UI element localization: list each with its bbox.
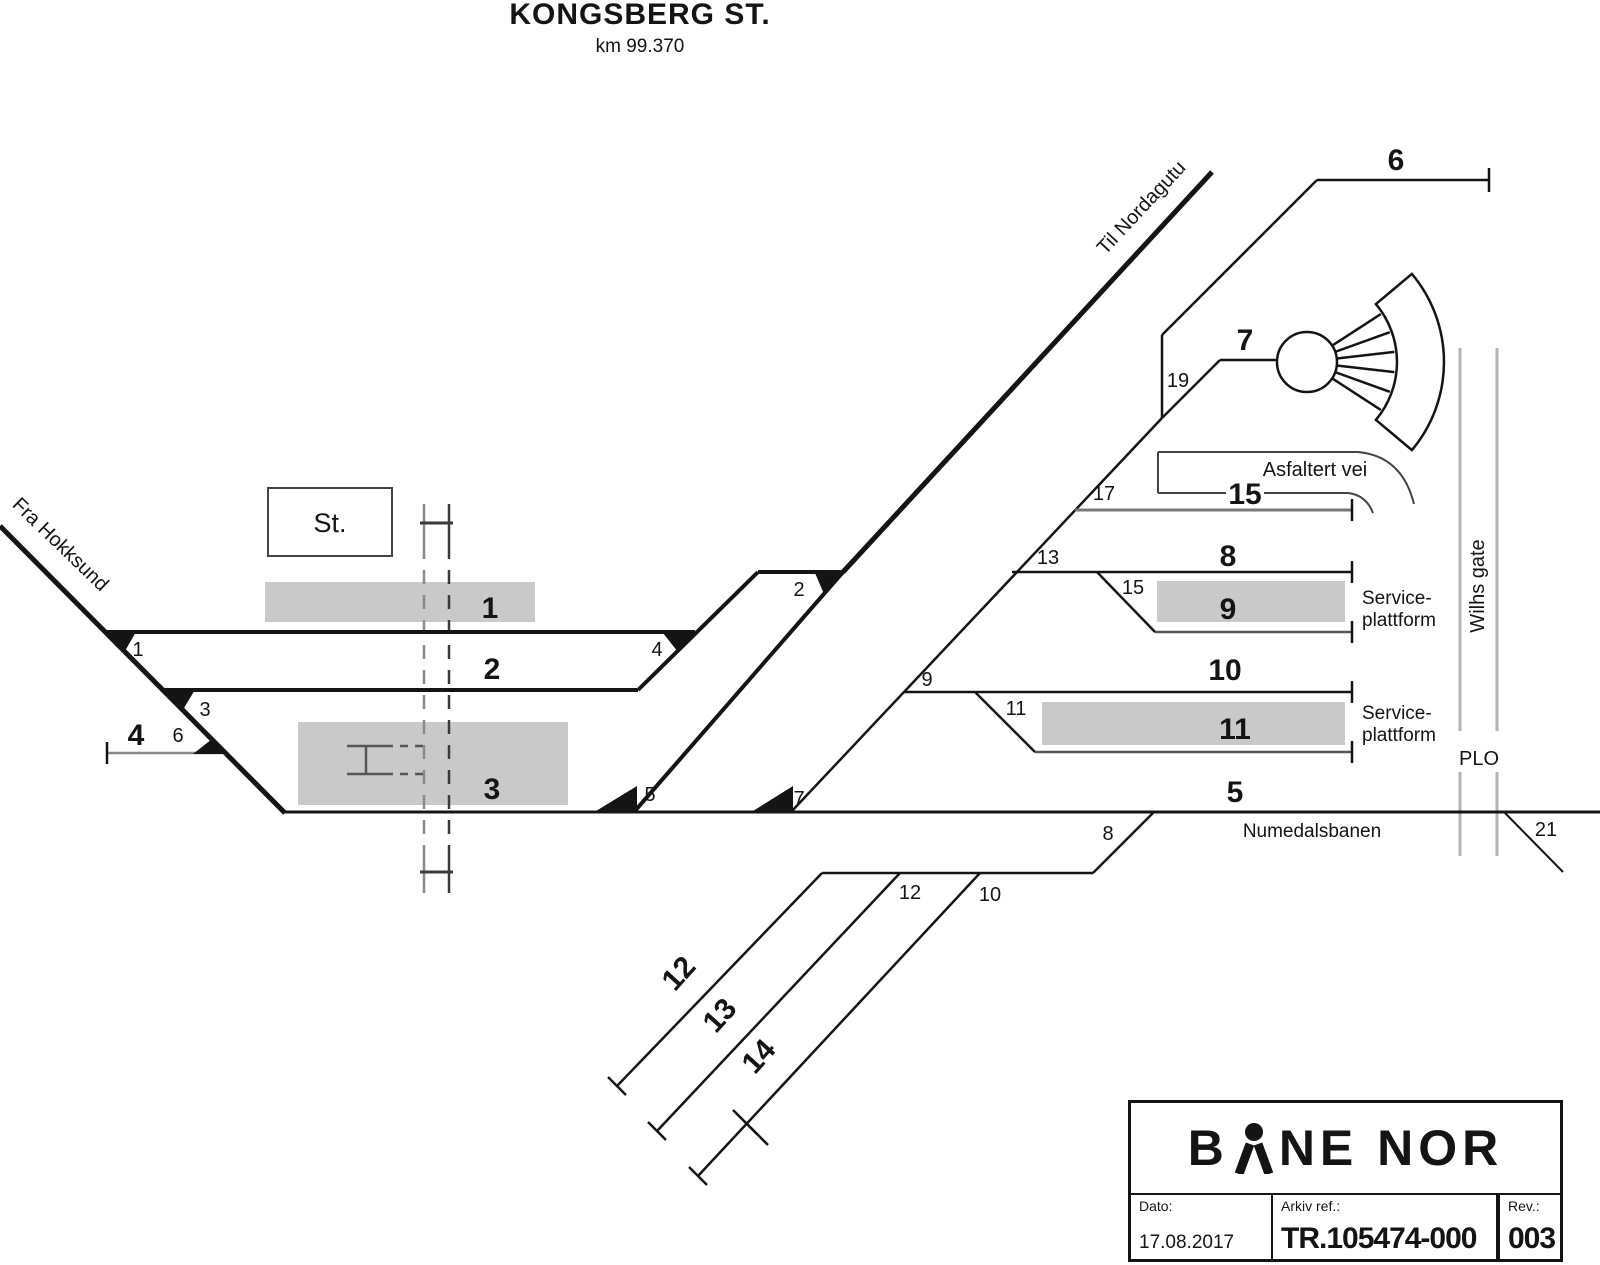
service-platform-label-1a: Service- xyxy=(1362,588,1432,609)
switch-label-5: 5 xyxy=(644,784,655,806)
titleblock: B NE NOR Dato: 17.08.2017 Arkiv ref.: TR… xyxy=(1128,1100,1563,1262)
switch-label-4: 4 xyxy=(651,639,662,661)
track-label-3: 3 xyxy=(484,773,501,806)
wedge-switch-4 xyxy=(663,633,697,652)
switch-label-12: 12 xyxy=(899,882,921,904)
switch-label-11: 11 xyxy=(1006,698,1027,720)
service-platform-11 xyxy=(1042,702,1345,745)
service-platform-label-2b: plattform xyxy=(1362,725,1436,746)
brand-letters-ne-nor: NE NOR xyxy=(1279,1123,1503,1173)
endpoint-from-label: Fra Hokksund xyxy=(8,494,113,596)
track-end-ticks xyxy=(107,168,1489,1185)
switch-label-1: 1 xyxy=(132,639,143,661)
station-box-label: St. xyxy=(313,508,346,538)
track-14-derail-bar-2 xyxy=(744,1121,768,1145)
date-label: Dato: xyxy=(1139,1198,1263,1214)
date-value: 17.08.2017 xyxy=(1139,1232,1234,1254)
street-name-label: Wilhs gate xyxy=(1467,539,1489,632)
wedge-switch-2 xyxy=(815,573,845,594)
bane-nor-logo: B NE NOR xyxy=(1131,1103,1560,1195)
track-label-7: 7 xyxy=(1237,324,1254,357)
track-label-15: 15 xyxy=(1228,478,1261,511)
station-building-box: St. xyxy=(268,488,392,556)
track-main-from-hokksund xyxy=(0,526,285,813)
track-label-6: 6 xyxy=(1388,144,1405,177)
rev-value: 003 xyxy=(1508,1222,1555,1256)
switch-label-15: 15 xyxy=(1122,577,1144,599)
track-label-5: 5 xyxy=(1227,776,1244,809)
archive-ref-value: TR.105474-000 xyxy=(1281,1222,1476,1256)
bane-nor-a-icon xyxy=(1231,1122,1277,1174)
titleblock-fields: Dato: 17.08.2017 Arkiv ref.: TR.105474-0… xyxy=(1131,1195,1560,1260)
track-main-to-nordagutu xyxy=(843,172,1212,572)
titleblock-rev-cell: Rev.: 003 xyxy=(1500,1195,1560,1260)
track-label-1: 1 xyxy=(482,592,499,625)
switch-label-13: 13 xyxy=(1037,547,1059,569)
service-platform-label-2a: Service- xyxy=(1362,703,1432,724)
track-13-line xyxy=(657,873,900,1131)
service-platform-9 xyxy=(1157,581,1345,622)
tracks xyxy=(0,172,1600,1176)
track-label-4: 4 xyxy=(128,719,145,752)
track-schematic-page: KONGSBERG ST. km 99.370 xyxy=(0,0,1600,1265)
switch-label-2: 2 xyxy=(793,579,804,601)
track-12-line xyxy=(617,873,822,1086)
switch-label-10: 10 xyxy=(979,884,1001,906)
track-label-2: 2 xyxy=(484,653,501,686)
switch-label-3: 3 xyxy=(199,699,210,721)
track-label-10: 10 xyxy=(1208,654,1241,687)
track-label-12: 12 xyxy=(656,950,703,997)
wedge-switch-7 xyxy=(753,786,793,811)
plo-label: PLO xyxy=(1459,748,1499,770)
wedge-switch-5 xyxy=(596,786,637,811)
titleblock-archive-cell: Arkiv ref.: TR.105474-000 xyxy=(1273,1195,1500,1260)
numedalsbanen-label: Numedalsbanen xyxy=(1243,821,1381,842)
track-label-8: 8 xyxy=(1220,540,1237,573)
rev-label: Rev.: xyxy=(1508,1198,1552,1214)
brand-letter-b: B xyxy=(1188,1123,1229,1173)
switch-label-21: 21 xyxy=(1535,819,1557,841)
track-14-line xyxy=(698,873,980,1176)
track-diagram-canvas: St. Fra Hokksund Til Nordagutu 1 2 3 4 5… xyxy=(0,0,1600,1265)
archive-ref-label: Arkiv ref.: xyxy=(1281,1198,1488,1214)
roundhouse-stall-tracks xyxy=(1333,314,1394,410)
switch-label-6: 6 xyxy=(172,725,183,747)
track-3-climb xyxy=(634,572,843,812)
switch-label-8: 8 xyxy=(1102,823,1113,845)
asphalt-road-label: Asfaltert vei xyxy=(1263,459,1367,481)
titleblock-date-cell: Dato: 17.08.2017 xyxy=(1131,1195,1273,1260)
service-platform-label-1b: plattform xyxy=(1362,610,1436,631)
pedestrian-corridor xyxy=(347,504,453,893)
turntable-and-roundhouse xyxy=(1277,274,1444,450)
switch-label-7: 7 xyxy=(793,788,804,810)
track-label-11: 11 xyxy=(1219,713,1251,746)
switch-label-17: 17 xyxy=(1093,483,1115,505)
track-label-13: 13 xyxy=(697,992,744,1039)
switch-label-19: 19 xyxy=(1167,370,1189,392)
platform-3 xyxy=(298,722,568,805)
switch-label-9: 9 xyxy=(921,669,932,691)
track-label-9: 9 xyxy=(1220,593,1237,626)
roundhouse-fan-icon xyxy=(1376,274,1444,450)
turntable-icon xyxy=(1277,332,1337,392)
wedge-switch-6 xyxy=(193,739,228,754)
